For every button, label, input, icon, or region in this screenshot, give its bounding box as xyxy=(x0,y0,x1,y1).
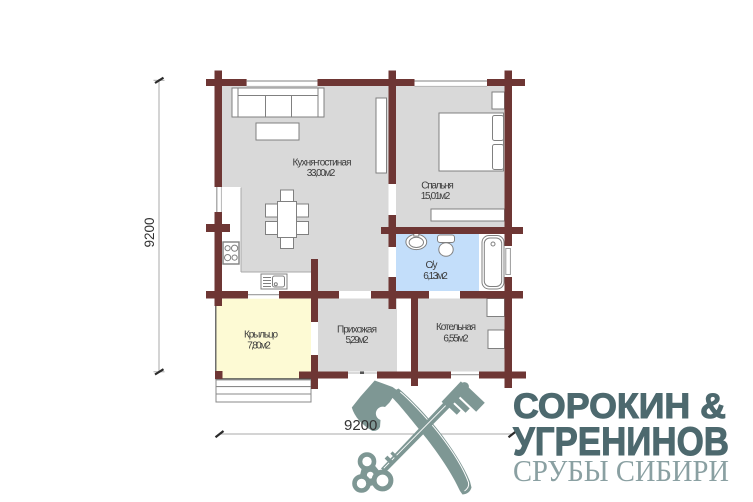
svg-text:Крыльцо: Крыльцо xyxy=(244,330,278,341)
svg-text:Спальня: Спальня xyxy=(421,180,454,191)
svg-text:С/у: С/у xyxy=(426,260,438,271)
svg-text:Котельная: Котельная xyxy=(436,322,476,333)
svg-text:Кухня-гостиная: Кухня-гостиная xyxy=(293,157,352,168)
svg-text:СРУБЫ СИБИРИ: СРУБЫ СИБИРИ xyxy=(513,454,729,488)
svg-text:7,80м2: 7,80м2 xyxy=(247,341,271,352)
svg-text:6,55м2: 6,55м2 xyxy=(443,334,469,345)
svg-text:15,01м2: 15,01м2 xyxy=(421,191,451,202)
svg-text:9200: 9200 xyxy=(142,217,157,247)
svg-text:9200: 9200 xyxy=(344,417,377,434)
svg-text:Прихожая: Прихожая xyxy=(337,324,377,335)
svg-text:33,00м2: 33,00м2 xyxy=(307,168,336,179)
svg-text:5,29м2: 5,29м2 xyxy=(346,335,369,346)
svg-text:6,13м2: 6,13м2 xyxy=(423,271,448,282)
